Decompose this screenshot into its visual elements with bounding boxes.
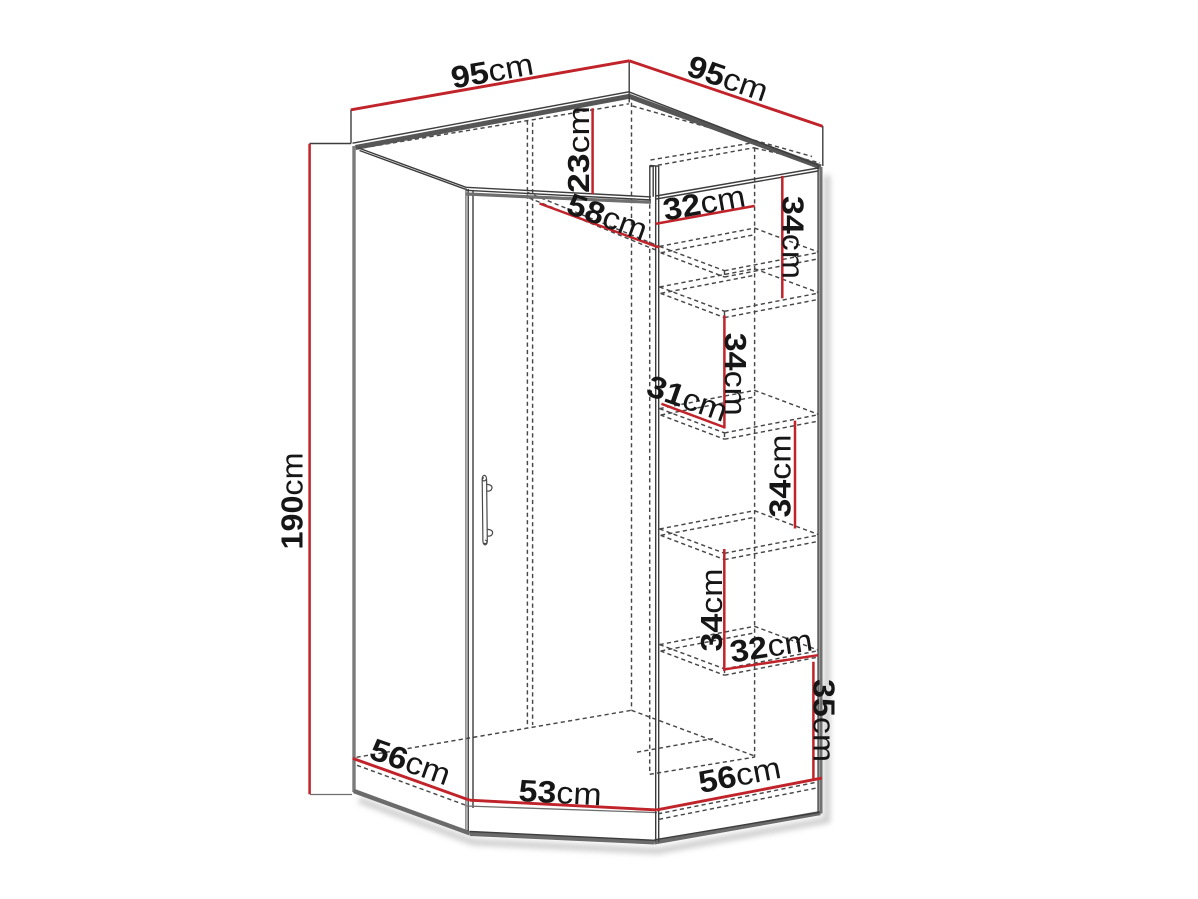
svg-text:190cm: 190cm	[274, 453, 309, 550]
svg-text:34cm: 34cm	[693, 569, 728, 652]
svg-text:34cm: 34cm	[776, 196, 811, 279]
svg-text:35cm: 35cm	[807, 679, 842, 762]
svg-text:34cm: 34cm	[762, 435, 797, 518]
svg-text:53cm: 53cm	[518, 773, 603, 812]
svg-text:23cm: 23cm	[561, 106, 596, 193]
